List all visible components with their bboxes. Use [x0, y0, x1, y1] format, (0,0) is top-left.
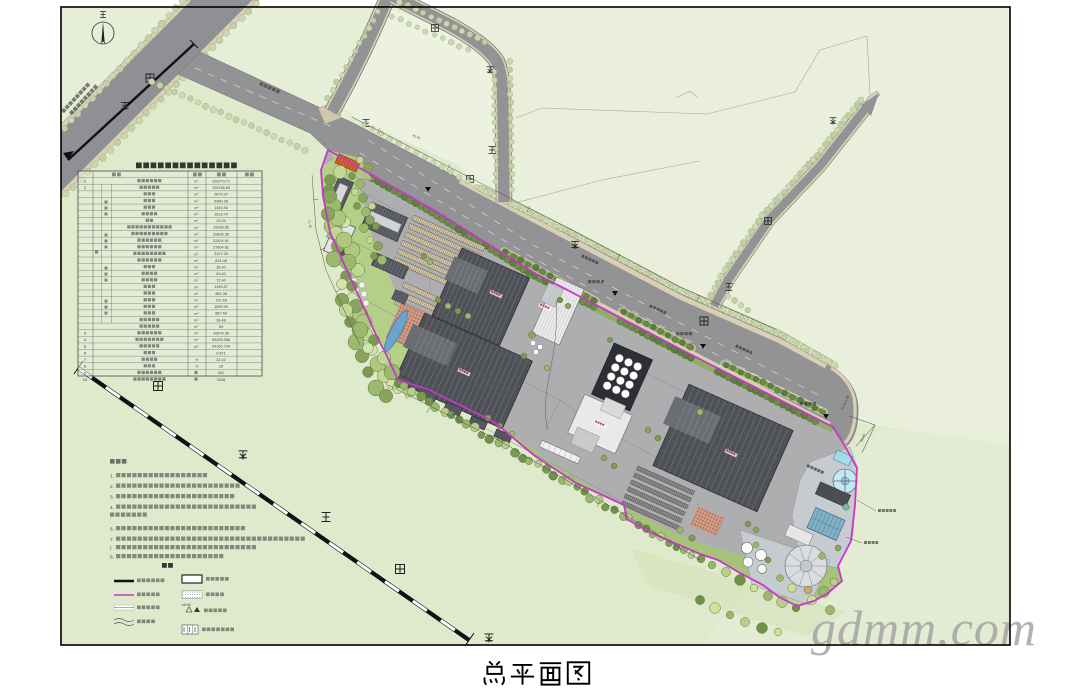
svg-text:1599.90: 1599.90 [214, 305, 228, 309]
svg-text:m²: m² [194, 345, 199, 349]
svg-text:1.: 1. [110, 474, 114, 480]
svg-text:10: 10 [83, 377, 88, 382]
svg-text:887.69: 887.69 [215, 312, 227, 316]
svg-text:72.40: 72.40 [216, 279, 226, 283]
svg-text:m²: m² [194, 246, 199, 250]
svg-text:m²: m² [194, 285, 199, 289]
svg-text:42676.39: 42676.39 [213, 332, 229, 336]
svg-text:981.38: 981.38 [215, 292, 227, 296]
svg-text:7.: 7. [110, 537, 114, 543]
svg-text:126768.80: 126768.80 [212, 186, 230, 190]
svg-text:m²: m² [194, 219, 199, 223]
svg-text:m²: m² [194, 279, 199, 283]
svg-text:2.: 2. [110, 484, 114, 490]
svg-text:±0.00: ±0.00 [182, 603, 191, 607]
svg-text:m²: m² [194, 193, 199, 197]
svg-text:28: 28 [219, 365, 223, 369]
svg-text:814.46: 814.46 [215, 259, 227, 263]
svg-text:1445.57: 1445.57 [214, 285, 228, 289]
svg-text:m²: m² [194, 292, 199, 296]
svg-text:126273.71: 126273.71 [212, 179, 230, 183]
svg-text:36.40: 36.40 [216, 265, 226, 269]
svg-text:m²: m² [194, 272, 199, 276]
svg-text:0.871: 0.871 [216, 351, 226, 355]
svg-text:m²: m² [194, 213, 199, 217]
svg-text:1345.95: 1345.95 [214, 206, 228, 210]
svg-text:6.: 6. [110, 527, 114, 533]
svg-text:m²: m² [194, 332, 199, 336]
svg-text:24160.734: 24160.734 [212, 345, 230, 349]
svg-text:1813.70: 1813.70 [214, 213, 228, 217]
svg-text:m²: m² [194, 259, 199, 263]
svg-text:720.69: 720.69 [215, 299, 227, 303]
svg-text:m²: m² [194, 266, 199, 270]
svg-text:59: 59 [219, 325, 223, 329]
svg-text:m²: m² [194, 338, 199, 342]
svg-text:5980.38: 5980.38 [214, 199, 228, 203]
svg-text:m²: m² [194, 199, 199, 203]
svg-text:53.40: 53.40 [216, 272, 226, 276]
svg-text:20806.35: 20806.35 [213, 232, 229, 236]
svg-text:59425.986: 59425.986 [212, 338, 230, 342]
svg-text:391: 391 [218, 371, 224, 375]
svg-text:m²: m² [194, 206, 199, 210]
svg-text:m²: m² [194, 232, 199, 236]
svg-text:m²: m² [194, 239, 199, 243]
svg-text:m²: m² [194, 312, 199, 316]
svg-text:3.: 3. [110, 495, 114, 501]
svg-text:m²: m² [194, 318, 199, 322]
svg-text:23.94: 23.94 [216, 219, 226, 223]
svg-text:gdmm.com: gdmm.com [811, 600, 1037, 656]
svg-text:m²: m² [194, 252, 199, 256]
svg-text:4.: 4. [110, 505, 114, 511]
svg-text:m²: m² [194, 180, 199, 184]
svg-text:38.48: 38.48 [216, 318, 226, 322]
svg-text:2038: 2038 [217, 378, 225, 382]
svg-text:2879.37: 2879.37 [214, 193, 228, 197]
svg-text:3127.25: 3127.25 [214, 252, 228, 256]
svg-text:8.: 8. [110, 555, 114, 561]
svg-text:m²: m² [194, 226, 199, 230]
svg-text:m²: m² [194, 305, 199, 309]
svg-text:m²: m² [194, 186, 199, 190]
svg-text:22424.61: 22424.61 [213, 239, 229, 243]
svg-text:27664.81: 27664.81 [213, 246, 229, 250]
svg-text:m²: m² [194, 299, 199, 303]
svg-text:32.02: 32.02 [216, 358, 226, 362]
svg-text:19158.85: 19158.85 [213, 226, 229, 230]
svg-text:m²: m² [194, 325, 199, 329]
